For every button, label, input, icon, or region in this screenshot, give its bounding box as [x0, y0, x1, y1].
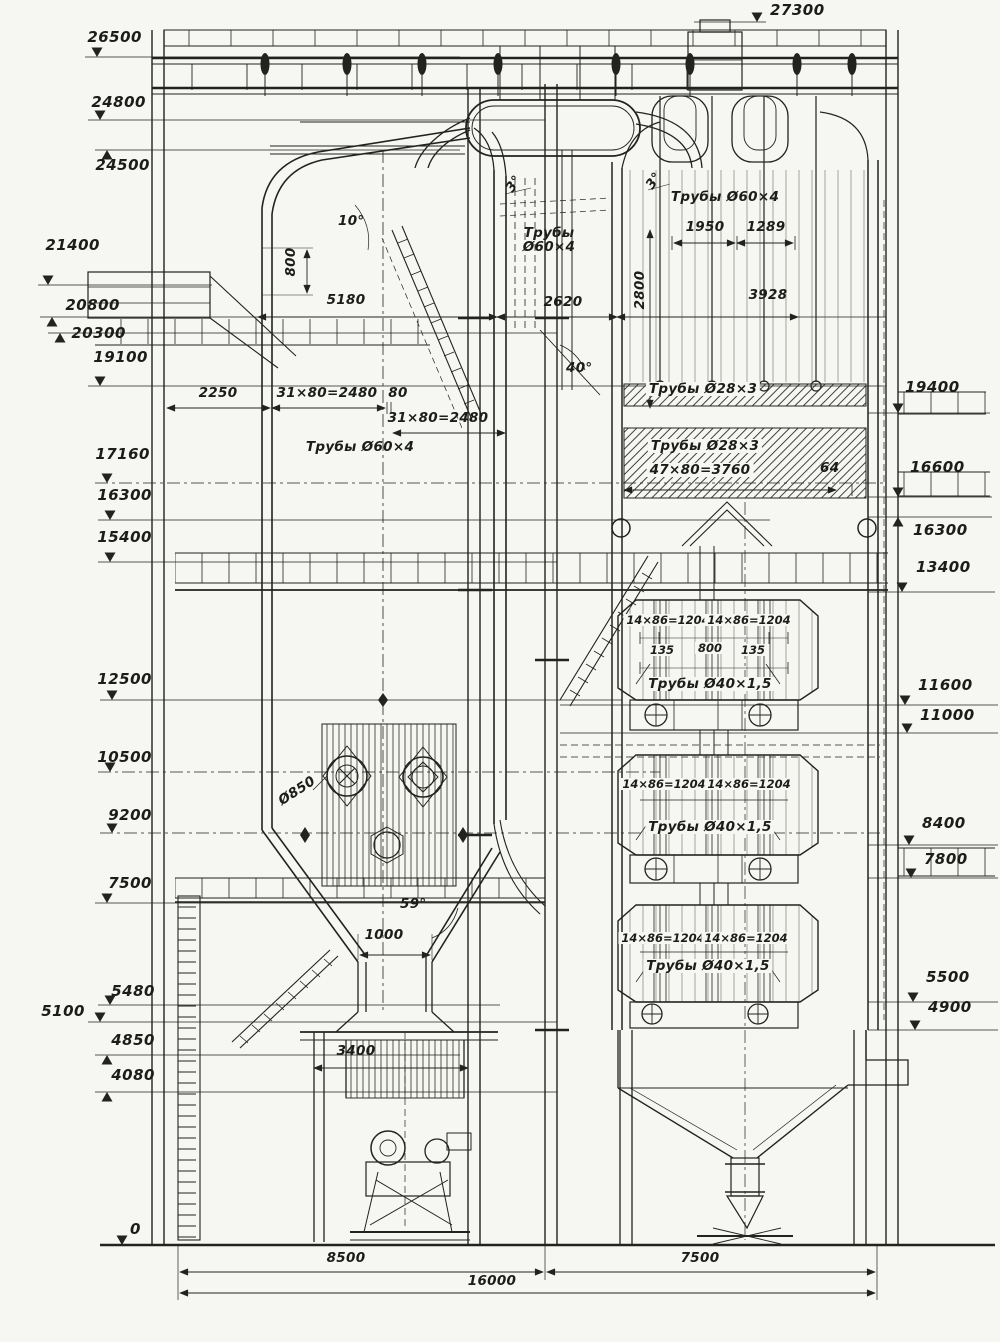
- angle-funnel-59deg: 59°: [400, 897, 426, 911]
- dim-mid-gap-64: 64: [820, 461, 839, 475]
- elevation-left-5100: 5100: [15, 1004, 85, 1020]
- econ2-tubes: Трубы Ø40×1,5: [645, 820, 774, 834]
- elevation-left-21400: 21400: [30, 238, 100, 254]
- elevation-left-7500: 7500: [82, 876, 152, 892]
- dim-front-2250: 2250: [199, 386, 238, 400]
- elevation-left-17160: 17160: [80, 447, 150, 463]
- elevation-left-15400: 15400: [82, 530, 152, 546]
- elevation-left-4080: 4080: [85, 1068, 155, 1084]
- elevation-left-20300: 20300: [56, 326, 126, 342]
- econ1-seg-800: 800: [695, 642, 725, 654]
- dim-roof-rise-800: 800: [284, 247, 298, 276]
- dim-sh-span-1950: 1950: [686, 220, 725, 234]
- dim-shaft-width-3928: 3928: [749, 288, 788, 302]
- elevation-left-4850: 4850: [85, 1033, 155, 1049]
- elevation-left-12500: 12500: [82, 672, 152, 688]
- elevation-left-0: 0: [130, 1222, 141, 1238]
- elevation-right-7800: 7800: [924, 852, 968, 868]
- econ1-tubes: Трубы Ø40×1,5: [645, 677, 774, 691]
- label-bank2-tubes: Трубы Ø28×3: [648, 439, 762, 453]
- elevation-left-24800: 24800: [76, 95, 146, 111]
- dim-span-total-16000: 16000: [468, 1274, 516, 1288]
- elevation-right-4900: 4900: [928, 1000, 972, 1016]
- econ1-seg-135b: 135: [738, 644, 768, 656]
- label-furnace-tubes: Трубы Ø60×4: [306, 440, 414, 454]
- econ1-seg-135a: 135: [647, 644, 677, 656]
- drawing-canvas: 26500 24800 24500 21400 20800 20300 1910…: [0, 0, 1000, 1342]
- elevation-right-8400: 8400: [922, 816, 966, 832]
- econ2-pitch1: 14×86=1204: [619, 778, 708, 790]
- elevation-left-19100: 19100: [78, 350, 148, 366]
- econ2-pitch2: 14×86=1204: [704, 778, 793, 790]
- elevation-right-11600: 11600: [918, 678, 973, 694]
- elevation-left-16300: 16300: [82, 488, 152, 504]
- elevation-right-13400: 13400: [916, 560, 971, 576]
- label-platen-tubes: Трубы Ø60×4: [523, 226, 575, 254]
- elevation-left-26500: 26500: [72, 30, 142, 46]
- elevation-left-10500: 10500: [82, 750, 152, 766]
- elevation-right-11000: 11000: [920, 708, 975, 724]
- dim-pitch-80: 80: [388, 386, 407, 400]
- elevation-right-27300: 27300: [770, 3, 825, 19]
- angle-roof-10deg: 10°: [338, 214, 364, 228]
- elevation-right-5500: 5500: [926, 970, 970, 986]
- dim-span-left-8500: 8500: [327, 1251, 366, 1265]
- dim-furnace-width-5180: 5180: [327, 293, 366, 307]
- elevation-right-16300: 16300: [913, 523, 968, 539]
- dim-sh-span-1289: 1289: [747, 220, 786, 234]
- dim-slag-width-3400: 3400: [337, 1044, 376, 1058]
- dim-throat-1000: 1000: [365, 928, 404, 942]
- dim-pitch-31x80-a: 31×80=2480: [277, 386, 378, 400]
- econ1-pitch1: 14×86=1204: [623, 614, 712, 626]
- dim-sh-height-2800: 2800: [633, 271, 647, 310]
- elevation-left-24500: 24500: [80, 158, 150, 174]
- econ1-pitch2: 14×86=1204: [704, 614, 793, 626]
- elevation-left-9200: 9200: [82, 808, 152, 824]
- label-superheater-tubes: Трубы Ø60×4: [671, 190, 779, 204]
- econ3-tubes: Трубы Ø40×1,5: [643, 959, 772, 973]
- label-bank1-tubes: Трубы Ø28×3: [646, 382, 760, 396]
- dim-gap-2620: 2620: [544, 295, 583, 309]
- dim-pitch-31x80-b: 31×80=2480: [388, 411, 489, 425]
- econ3-pitch2: 14×86=1204: [701, 932, 790, 944]
- angle-baffle-40deg: 40°: [566, 361, 592, 375]
- elevation-right-16600: 16600: [910, 460, 965, 476]
- elevation-right-19400: 19400: [905, 380, 960, 396]
- elevation-left-20800: 20800: [50, 298, 120, 314]
- dim-pitch-47x80-3760: 47×80=3760: [647, 463, 754, 477]
- elevation-left-5480: 5480: [85, 984, 155, 1000]
- econ3-pitch1: 14×86=1204: [618, 932, 707, 944]
- dim-span-right-7500: 7500: [681, 1251, 720, 1265]
